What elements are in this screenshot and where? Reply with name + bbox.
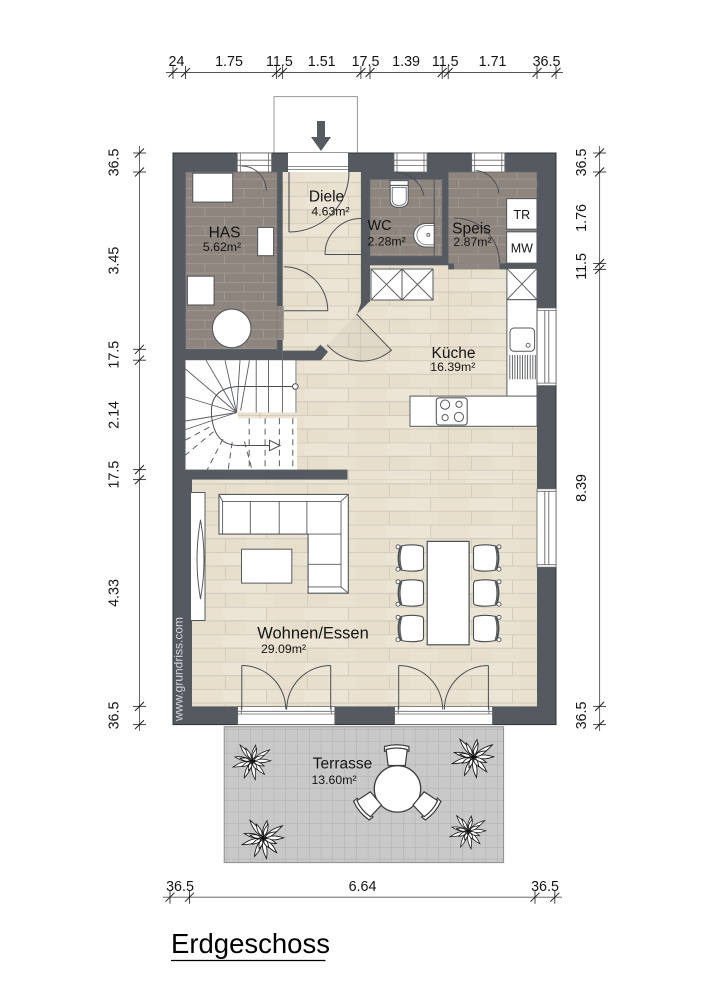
svg-text:17.5: 17.5: [107, 341, 123, 369]
svg-text:2.14: 2.14: [107, 401, 123, 429]
svg-text:Erdgeschoss: Erdgeschoss: [171, 928, 330, 959]
svg-text:24: 24: [169, 54, 185, 70]
svg-text:16.39m²: 16.39m²: [430, 360, 475, 374]
svg-text:WC: WC: [368, 218, 392, 234]
svg-text:36.5: 36.5: [107, 702, 123, 730]
svg-text:1.75: 1.75: [215, 54, 243, 70]
svg-text:www.grundriss.com: www.grundriss.com: [172, 617, 186, 722]
svg-text:36.5: 36.5: [531, 879, 559, 895]
svg-text:8.39: 8.39: [574, 474, 590, 502]
svg-text:17.5: 17.5: [107, 461, 123, 489]
svg-text:11.5: 11.5: [432, 54, 459, 70]
svg-text:1.76: 1.76: [574, 204, 590, 232]
svg-text:6.64: 6.64: [349, 879, 377, 895]
svg-text:4.33: 4.33: [107, 579, 123, 607]
svg-text:Diele: Diele: [309, 189, 344, 206]
svg-text:17.5: 17.5: [352, 54, 380, 70]
svg-text:36.5: 36.5: [533, 54, 561, 70]
svg-text:HAS: HAS: [209, 225, 241, 242]
svg-text:29.09m²: 29.09m²: [261, 642, 306, 656]
svg-text:TR: TR: [513, 208, 530, 222]
svg-text:36.5: 36.5: [574, 149, 590, 177]
svg-text:11.5: 11.5: [266, 54, 293, 70]
svg-text:36.5: 36.5: [166, 879, 194, 895]
svg-text:MW: MW: [511, 242, 533, 256]
svg-text:2.87m²: 2.87m²: [453, 235, 491, 249]
svg-text:36.5: 36.5: [574, 702, 590, 730]
svg-text:11.5: 11.5: [574, 253, 590, 280]
svg-text:5.62m²: 5.62m²: [203, 240, 241, 254]
svg-text:1.71: 1.71: [479, 54, 507, 70]
svg-text:1.51: 1.51: [308, 54, 336, 70]
svg-text:Terrasse: Terrasse: [313, 756, 372, 773]
svg-text:36.5: 36.5: [107, 149, 123, 177]
svg-text:1.39: 1.39: [392, 54, 420, 70]
svg-text:4.63m²: 4.63m²: [311, 205, 349, 219]
svg-text:13.60m²: 13.60m²: [311, 773, 356, 787]
svg-text:Wohnen/Essen: Wohnen/Essen: [257, 625, 369, 643]
svg-text:2.28m²: 2.28m²: [368, 235, 406, 249]
svg-text:3.45: 3.45: [107, 247, 123, 275]
